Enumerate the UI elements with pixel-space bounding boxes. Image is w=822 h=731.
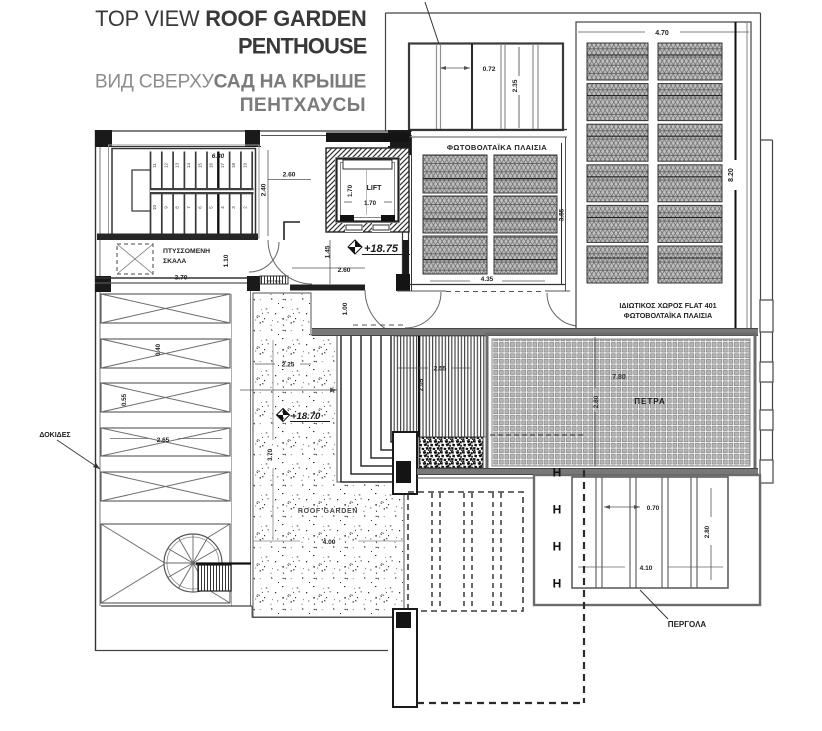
svg-text:13: 13 (175, 163, 180, 169)
svg-text:1.70: 1.70 (347, 184, 354, 197)
svg-text:7: 7 (186, 206, 191, 209)
svg-text:3.70: 3.70 (267, 448, 274, 461)
svg-text:1.70: 1.70 (364, 200, 377, 207)
svg-text:4.00: 4.00 (323, 539, 336, 546)
svg-text:18: 18 (231, 163, 236, 169)
svg-text:2.05: 2.05 (418, 378, 425, 391)
svg-text:7.80: 7.80 (612, 374, 626, 381)
svg-text:2.35: 2.35 (512, 79, 519, 92)
svg-text:9: 9 (163, 206, 168, 209)
svg-text:ΦΩΤΟΒΟΛΤΑΪΚΑ ΠΛΑΙΣΙΑ: ΦΩΤΟΒΟΛΤΑΪΚΑ ΠΛΑΙΣΙΑ (447, 143, 547, 152)
svg-text:H: H (553, 577, 562, 591)
svg-text:17: 17 (220, 163, 225, 169)
svg-text:H: H (553, 503, 562, 517)
svg-text:2.25: 2.25 (282, 362, 295, 369)
svg-text:8.20: 8.20 (728, 168, 735, 182)
svg-text:ПЕНТХАУСЫ: ПЕНТХАУСЫ (240, 95, 366, 116)
svg-text:2.55: 2.55 (434, 366, 447, 373)
svg-text:1.00: 1.00 (342, 302, 349, 315)
svg-text:3.70: 3.70 (175, 275, 188, 282)
svg-text:ΠΕΤΡΑ: ΠΕΤΡΑ (634, 397, 666, 406)
svg-text:0.70: 0.70 (647, 505, 660, 512)
svg-text:ВИД СВЕРХУСАД НА КРЫШЕ: ВИД СВЕРХУСАД НА КРЫШЕ (95, 72, 367, 93)
svg-text:H: H (553, 540, 562, 554)
svg-text:LIFT: LIFT (367, 185, 382, 192)
svg-text:2.60: 2.60 (338, 267, 351, 274)
svg-text:1.45: 1.45 (325, 245, 332, 258)
svg-text:2.60: 2.60 (593, 395, 600, 408)
svg-text:14: 14 (186, 163, 191, 169)
svg-text:H: H (553, 466, 562, 480)
svg-text:ΣΚΑΛΑ: ΣΚΑΛΑ (163, 258, 186, 265)
svg-text:+18.75: +18.75 (364, 243, 399, 255)
svg-text:ΠΕΡΓΟΛΑ: ΠΕΡΓΟΛΑ (668, 620, 707, 629)
svg-text:2.40: 2.40 (261, 183, 268, 196)
svg-text:15: 15 (197, 163, 202, 169)
svg-text:4: 4 (220, 206, 225, 209)
svg-text:0.72: 0.72 (483, 66, 496, 73)
svg-text:8: 8 (175, 206, 180, 209)
svg-text:6: 6 (197, 206, 202, 209)
svg-text:1.10: 1.10 (223, 254, 230, 267)
svg-text:2.80: 2.80 (704, 525, 711, 538)
svg-text:11: 11 (152, 163, 157, 168)
svg-text:19: 19 (243, 163, 248, 169)
svg-text:ΔΟΚΙΔΕΣ: ΔΟΚΙΔΕΣ (39, 432, 70, 439)
svg-text:2: 2 (243, 206, 248, 209)
svg-text:+18.70: +18.70 (291, 411, 321, 422)
svg-text:ΨΥΓΕΙΟ: ΨΥΓΕΙΟ (266, 279, 281, 284)
svg-text:10: 10 (152, 205, 157, 211)
svg-text:5: 5 (209, 206, 214, 209)
svg-text:0.40: 0.40 (155, 343, 162, 356)
svg-text:6.30: 6.30 (212, 153, 225, 160)
svg-text:ΠΤΥΣΣΟΜΕΝΗ: ΠΤΥΣΣΟΜΕΝΗ (163, 248, 210, 255)
svg-text:TOP VIEW ROOF GARDEN: TOP VIEW ROOF GARDEN (95, 6, 366, 31)
svg-text:3: 3 (231, 206, 236, 209)
svg-text:4.70: 4.70 (655, 30, 669, 37)
svg-text:3.85: 3.85 (559, 208, 566, 221)
svg-text:2.60: 2.60 (283, 172, 296, 179)
svg-text:ΙΔΙΩΤΙΚΟΣ ΧΩΡΟΣ FLAT 401: ΙΔΙΩΤΙΚΟΣ ΧΩΡΟΣ FLAT 401 (619, 301, 716, 310)
svg-text:0.55: 0.55 (121, 393, 128, 406)
svg-text:12: 12 (163, 163, 168, 169)
svg-text:4.35: 4.35 (481, 276, 494, 283)
svg-text:4.10: 4.10 (640, 565, 653, 572)
svg-text:PENTHOUSE: PENTHOUSE (238, 34, 367, 59)
svg-text:ROOF GARDEN: ROOF GARDEN (298, 508, 358, 515)
svg-text:16: 16 (209, 163, 214, 169)
svg-text:2.65: 2.65 (157, 437, 170, 444)
svg-text:ΦΩΤΟΒΟΛΤΑΪΚΑ ΠΛΑΙΣΙΑ: ΦΩΤΟΒΟΛΤΑΪΚΑ ΠΛΑΙΣΙΑ (624, 311, 712, 320)
